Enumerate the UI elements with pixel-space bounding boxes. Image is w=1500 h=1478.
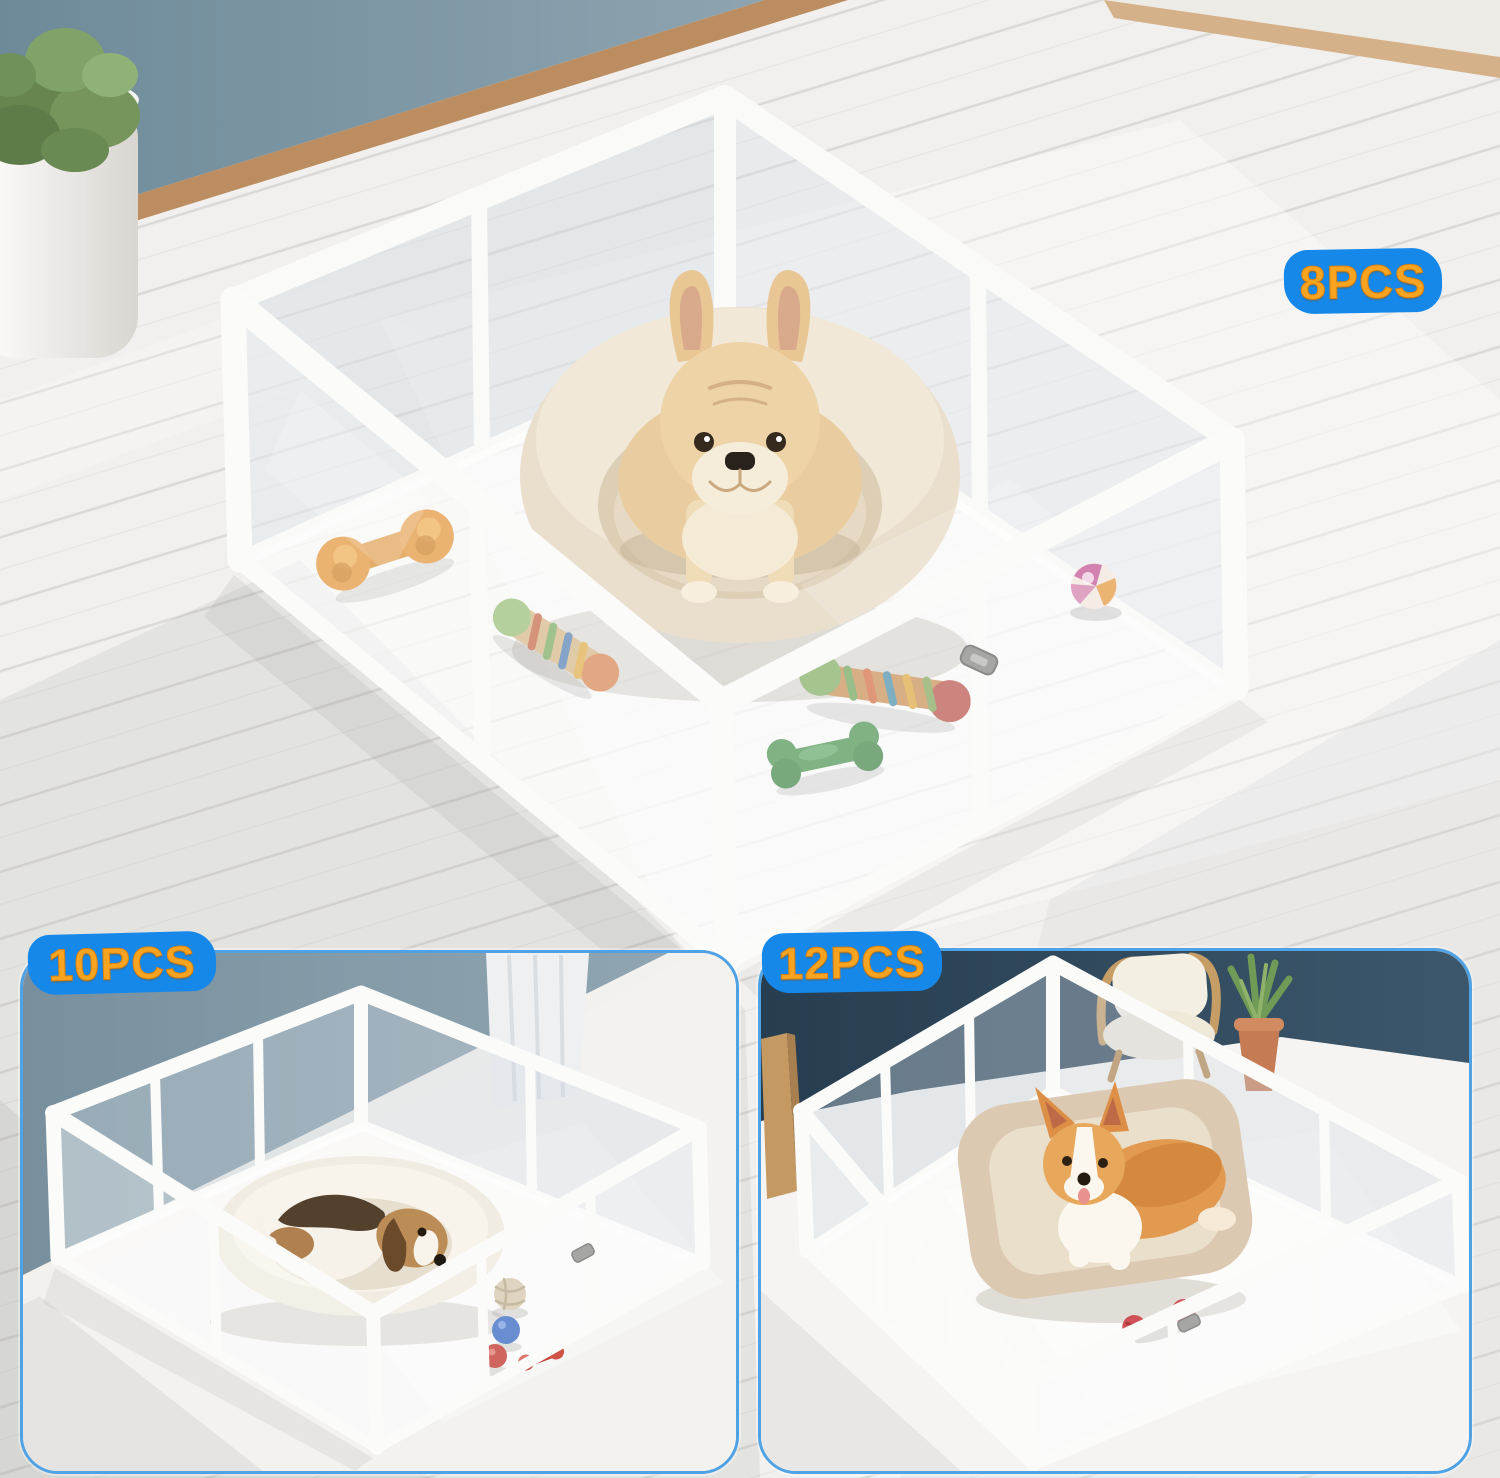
inset-10pcs [20,950,739,1474]
dog-right-eye [766,432,786,452]
corgi-right-eye [1098,1158,1108,1168]
corgi-tongue [1078,1188,1090,1204]
corgi-left-eye [1062,1156,1072,1166]
dog-left-eye [694,432,714,452]
badge-10pcs: 10PCS [27,931,217,996]
scene-12pcs [761,951,1469,1471]
product-collage: 8PCS 10PCS 12PCS [0,0,1500,1478]
planter [0,28,140,358]
dog-nose [725,452,755,470]
bolster-bed-and-corgi [951,1072,1260,1323]
beagle-eye [418,1228,427,1237]
scene-10pcs [23,953,736,1471]
inset-12pcs [758,948,1472,1474]
badge-8pcs: 8PCS [1283,248,1442,315]
badge-12pcs: 12PCS [761,930,942,993]
corgi-nose [1078,1173,1091,1186]
corgi-tail [1198,1207,1236,1231]
